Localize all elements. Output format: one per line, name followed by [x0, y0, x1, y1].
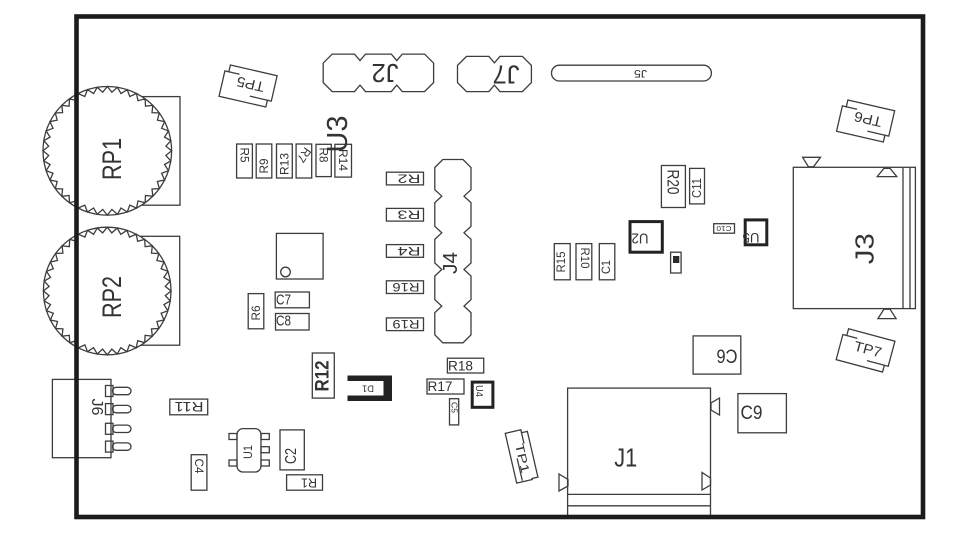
svg-text:R11: R11: [174, 399, 203, 415]
svg-text:J1: J1: [614, 442, 637, 472]
svg-text:U4: U4: [473, 385, 484, 397]
svg-text:R3: R3: [397, 208, 420, 222]
svg-text:R10: R10: [578, 248, 590, 269]
svg-text:D1: D1: [362, 383, 374, 393]
svg-text:C5: C5: [449, 402, 459, 413]
svg-text:R1: R1: [301, 476, 317, 490]
svg-text:C11: C11: [690, 178, 704, 198]
svg-text:C4: C4: [192, 459, 206, 474]
svg-text:R13: R13: [278, 153, 292, 175]
svg-text:C9: C9: [741, 403, 763, 424]
svg-text:R6: R6: [249, 305, 263, 320]
svg-text:C6: C6: [717, 345, 738, 366]
svg-text:U2: U2: [632, 230, 649, 247]
svg-text:R18: R18: [448, 358, 473, 373]
svg-text:J5: J5: [634, 67, 647, 79]
svg-text:R20: R20: [664, 170, 683, 195]
svg-text:J6: J6: [88, 399, 105, 416]
svg-text:R12: R12: [313, 361, 334, 392]
svg-text:R4: R4: [397, 244, 420, 258]
svg-text:J7: J7: [493, 60, 520, 90]
svg-text:U5: U5: [742, 230, 759, 246]
svg-text:C2: C2: [283, 448, 300, 464]
svg-text:RP1: RP1: [97, 138, 127, 180]
svg-text:R19: R19: [392, 317, 419, 331]
svg-text:J4: J4: [440, 252, 462, 274]
svg-text:RP2: RP2: [97, 276, 127, 318]
svg-text:C7: C7: [276, 293, 291, 309]
svg-text:C8: C8: [276, 314, 291, 330]
svg-text:J3: J3: [850, 233, 880, 264]
svg-text:R15: R15: [556, 252, 568, 273]
svg-text:C10: C10: [717, 224, 732, 233]
svg-text:J2: J2: [372, 58, 399, 88]
svg-text:R16: R16: [392, 280, 419, 294]
svg-text:R2: R2: [397, 172, 420, 186]
svg-text:U3: U3: [322, 116, 354, 153]
svg-text:R5: R5: [238, 148, 252, 163]
svg-text:U1: U1: [243, 445, 255, 459]
svg-text:R9: R9: [257, 158, 271, 173]
svg-text:R17: R17: [428, 379, 453, 394]
svg-text:C1: C1: [601, 260, 613, 274]
